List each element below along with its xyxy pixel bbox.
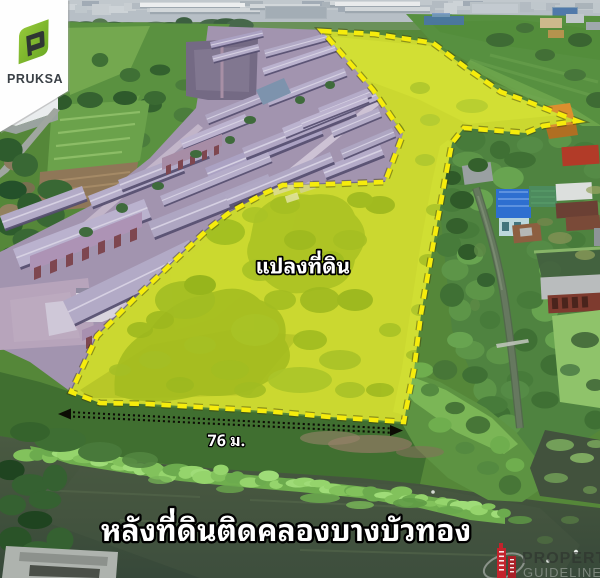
svg-text:GUIDELINE: GUIDELINE	[523, 565, 600, 578]
svg-text:PRUKSA: PRUKSA	[7, 72, 63, 86]
